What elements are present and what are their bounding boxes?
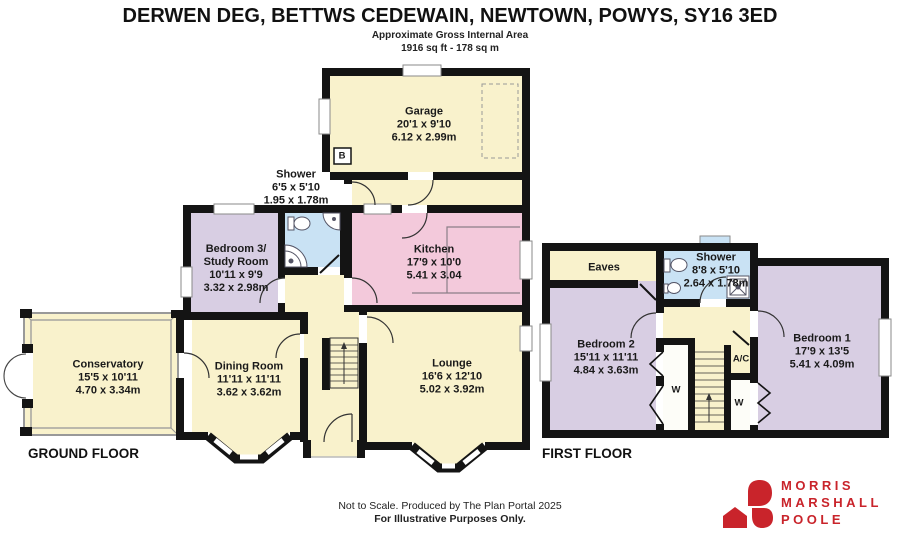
room-label-kitchen: Kitchen 17'9 x 10'0 5.41 x 3.04 [406,244,461,283]
floorplan-page: DERWEN DEG, BETTWS CEDEWAIN, NEWTOWN, PO… [0,0,900,537]
boiler-label: B [339,151,346,162]
footer-line1: Not to Scale. Produced by The Plan Porta… [0,500,900,512]
first-floor-caption: FIRST FLOOR [542,446,632,461]
kitchen-right-window [520,241,532,279]
room-label-bedroom2: Bedroom 2 15'11 x 11'11 4.84 x 3.63m [574,339,639,378]
logo-text-morris: MORRIS [781,477,854,494]
subtitle-size: 1916 sq ft - 178 sq m [0,43,900,54]
ff-sink-icon [668,283,681,294]
footer-line2: For Illustrative Purposes Only. [0,513,900,525]
room-label-gf-shower: Shower 6'5 x 5'10 1.95 x 1.78m [264,169,329,208]
toilet-icon [294,217,310,230]
subtitle-area: Approximate Gross Internal Area [0,30,900,41]
garage-left-window [319,99,330,134]
ground-floor-caption: GROUND FLOOR [28,446,139,461]
room-label-garage: Garage 20'1 x 9'10 6.12 x 2.99m [392,106,457,145]
wardrobe-right-label: W [735,398,744,409]
room-label-ff-shower: Shower 8'8 x 5'10 2.64 x 1.78m [684,252,749,291]
garage-top-window [403,65,441,76]
stairs-ground [330,338,358,388]
bedroom2-window [540,324,551,381]
toilet-cistern [288,217,294,230]
bedroom1-window [879,319,891,376]
ff-toilet-cistern [664,259,670,272]
logo-text-marshall: MARSHALL [781,494,882,511]
page-title: DERWEN DEG, BETTWS CEDEWAIN, NEWTOWN, PO… [0,5,900,28]
room-label-bedroom3: Bedroom 3/ Study Room 10'11 x 9'9 3.32 x… [204,243,269,295]
wardrobe-left-label: W [672,385,681,396]
bedroom3-left-window [181,267,192,297]
room-label-eaves: Eaves [588,262,620,275]
room-label-dining: Dining Room 11'11 x 11'11 3.62 x 3.62m [215,361,283,400]
logo-text-poole: POOLE [781,511,844,528]
bedroom3-top-window [214,204,254,214]
room-label-conservatory: Conservatory 15'5 x 10'11 4.70 x 3.34m [73,359,144,398]
room-label-bedroom1: Bedroom 1 17'9 x 13'5 5.41 x 4.09m [790,333,855,372]
kitchen-top-window [364,204,391,214]
room-label-lounge: Lounge 16'6 x 12'10 5.02 x 3.92m [420,358,485,397]
airing-cupboard-label: A/C [733,354,749,365]
lounge-right-window [520,326,532,351]
